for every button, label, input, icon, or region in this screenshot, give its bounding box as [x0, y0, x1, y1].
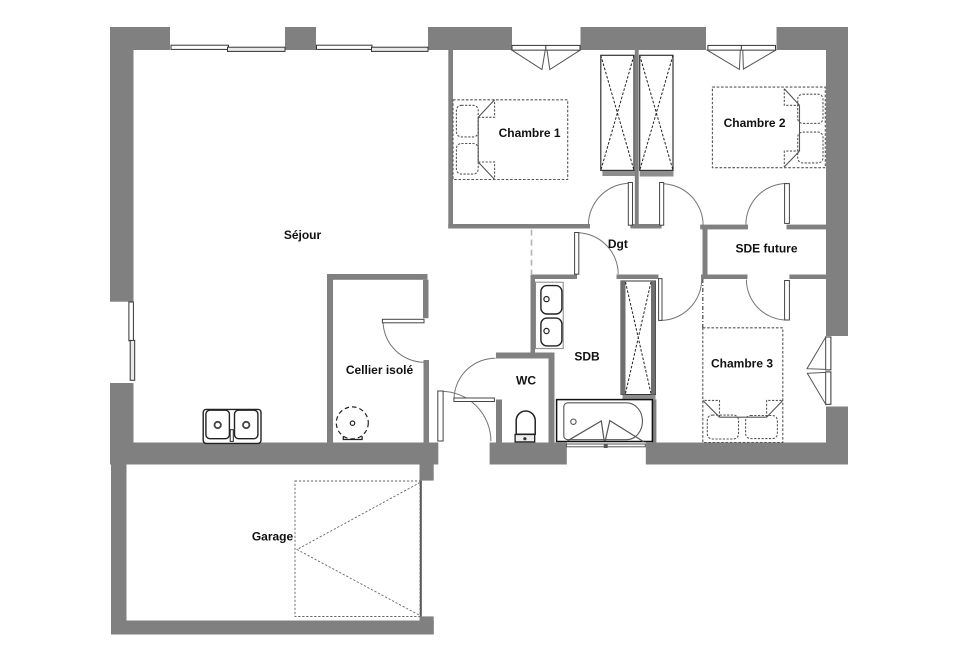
- svg-text:WC: WC: [516, 374, 536, 388]
- svg-text:Chambre 1: Chambre 1: [499, 126, 561, 140]
- svg-text:Cellier isolé: Cellier isolé: [346, 363, 414, 377]
- svg-text:Garage: Garage: [252, 530, 294, 544]
- svg-text:Chambre 2: Chambre 2: [724, 116, 786, 130]
- svg-text:Chambre 3: Chambre 3: [711, 357, 773, 371]
- svg-text:Dgt: Dgt: [608, 237, 628, 251]
- svg-text:SDE future: SDE future: [735, 241, 797, 255]
- svg-text:Séjour: Séjour: [284, 228, 322, 242]
- svg-text:SDB: SDB: [574, 350, 600, 364]
